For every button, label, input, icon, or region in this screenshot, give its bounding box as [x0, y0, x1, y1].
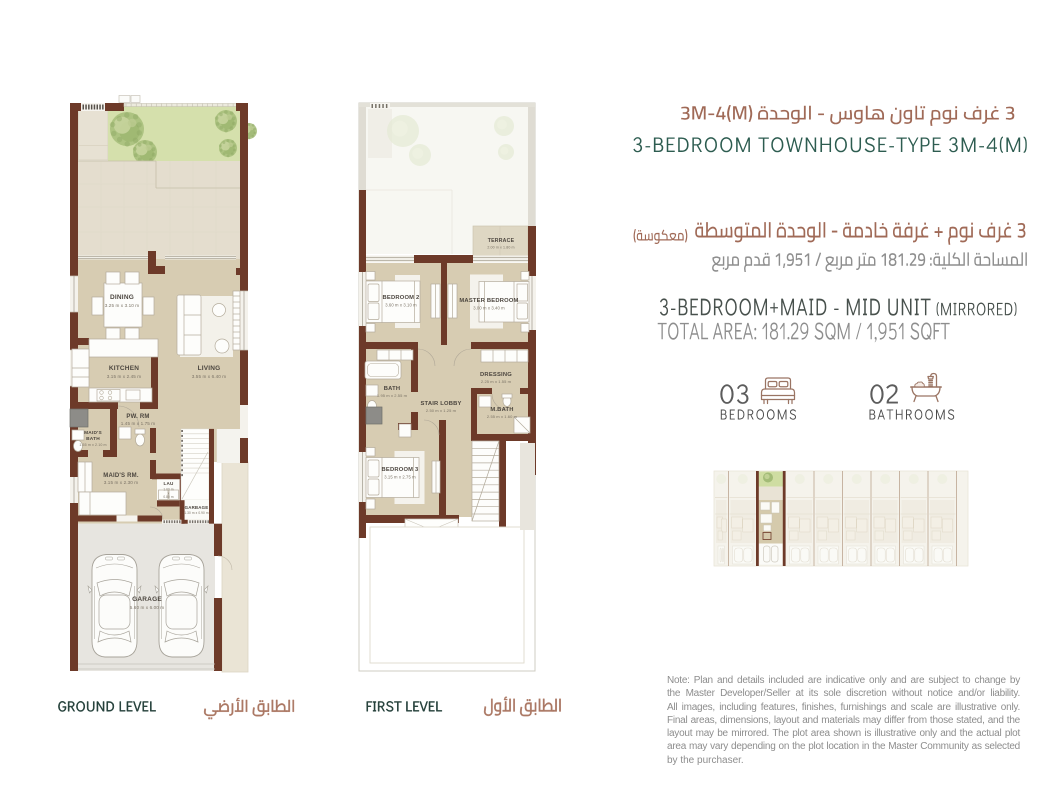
svg-text:3.15 m x 2.45 m: 3.15 m x 2.45 m	[107, 374, 142, 379]
svg-text:LAU: LAU	[163, 481, 174, 486]
svg-text:LIVING: LIVING	[198, 365, 221, 372]
svg-text:KITCHEN: KITCHEN	[109, 365, 139, 372]
svg-text:BEDROOM 3: BEDROOM 3	[382, 467, 419, 473]
svg-text:GARAGE: GARAGE	[132, 596, 162, 603]
svg-text:0.80 m: 0.80 m	[163, 495, 174, 499]
svg-text:2.55 m x 1.60 m: 2.55 m x 1.60 m	[487, 414, 518, 419]
svg-text:BATH: BATH	[86, 436, 100, 442]
svg-text:BEDROOM 2: BEDROOM 2	[383, 295, 420, 301]
svg-text:3.00 m x 3.40 m: 3.00 m x 3.40 m	[473, 306, 505, 311]
svg-text:TERRACE: TERRACE	[488, 238, 515, 244]
svg-text:5.60 m x 6.00 m: 5.60 m x 6.00 m	[130, 605, 165, 610]
svg-text:3.15 m x 2.75 m: 3.15 m x 2.75 m	[384, 475, 416, 480]
svg-text:M.BATH: M.BATH	[490, 407, 513, 413]
svg-text:PW. RM: PW. RM	[126, 414, 149, 420]
svg-text:2.25 m x 1.55 m: 2.25 m x 1.55 m	[481, 379, 512, 384]
svg-text:DRESSING: DRESSING	[480, 372, 512, 378]
svg-text:1.95 m x 2.55 m: 1.95 m x 2.55 m	[377, 393, 408, 398]
svg-text:2.00 m x 1.80 m: 2.00 m x 1.80 m	[487, 246, 514, 250]
svg-text:1.55 m x 2.10 m: 1.55 m x 2.10 m	[79, 443, 106, 447]
svg-text:1.45 m x 1.75 m: 1.45 m x 1.75 m	[121, 421, 156, 426]
svg-text:3.15 m x 2.30 m: 3.15 m x 2.30 m	[104, 480, 139, 485]
svg-text:DINING: DINING	[110, 294, 134, 301]
svg-text:3.25 m x 3.10 m: 3.25 m x 3.10 m	[105, 303, 140, 308]
svg-text:MAID'S: MAID'S	[84, 430, 102, 436]
svg-text:1.30 m x 0.90 m: 1.30 m x 0.90 m	[184, 511, 209, 515]
svg-text:GARBAGE: GARBAGE	[185, 505, 209, 510]
svg-text:BATH: BATH	[384, 386, 400, 392]
svg-text:2.50 m x 1.25 m: 2.50 m x 1.25 m	[426, 408, 457, 413]
svg-text:3.55 m x 6.40 m: 3.55 m x 6.40 m	[192, 374, 227, 379]
svg-text:MAID'S RM.: MAID'S RM.	[103, 473, 139, 479]
svg-text:STAIR LOBBY: STAIR LOBBY	[420, 401, 461, 407]
svg-text:3.60 m x 3.10 m: 3.60 m x 3.10 m	[385, 303, 417, 308]
svg-text:MASTER BEDROOM: MASTER BEDROOM	[459, 298, 518, 304]
